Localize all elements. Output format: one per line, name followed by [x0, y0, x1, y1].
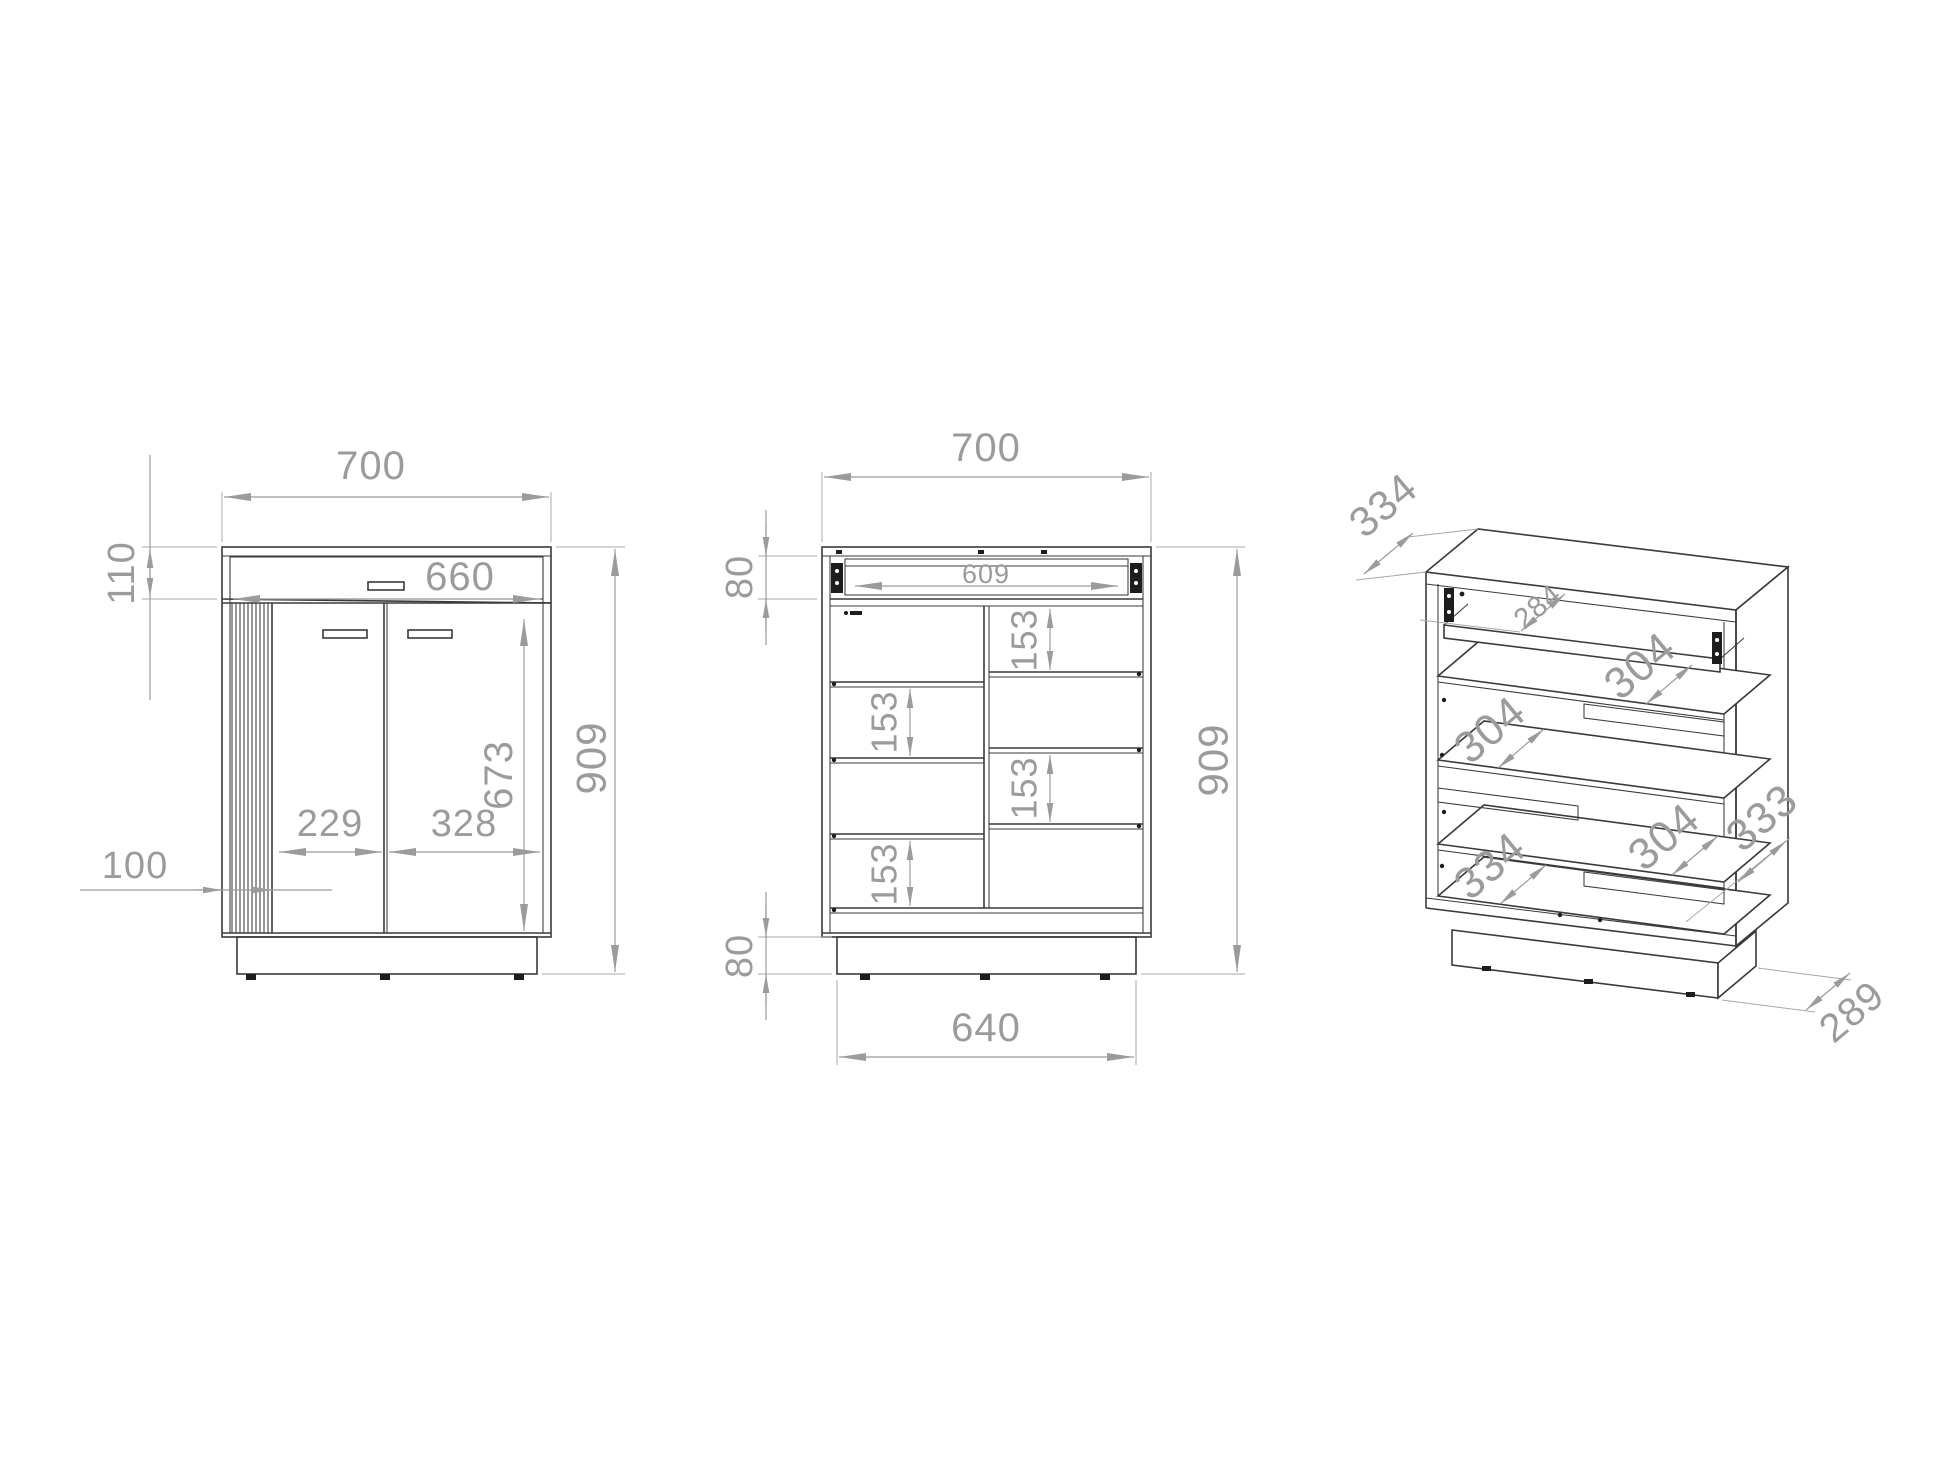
foot	[514, 974, 524, 980]
dim-v1-overall-height: 909	[568, 721, 615, 794]
perspective-view: 334 284 304 304 304 334 333 289	[1340, 464, 1893, 1052]
dim-v1-slat-width: 100	[102, 845, 168, 887]
foot	[860, 974, 870, 980]
front-view-open: 700 609 80 153 153 153 153	[719, 426, 1245, 1065]
plinth	[237, 937, 537, 980]
dim-v1-door-height: 673	[477, 740, 521, 810]
foot	[1482, 966, 1491, 971]
plinth-3d	[1452, 930, 1756, 998]
dimensions-front-open: 700 609 80 153 153 153 153	[719, 426, 1245, 1065]
plinth-open	[837, 937, 1136, 980]
dim-v1-inner-width: 660	[425, 555, 495, 599]
foot	[1584, 979, 1593, 984]
dim-v2-compartment-1: 153	[1004, 608, 1045, 671]
foot	[246, 974, 256, 980]
foot	[1686, 992, 1695, 997]
hinge-hardware-left	[1444, 588, 1454, 622]
dim-v2-overall-width: 700	[951, 426, 1021, 470]
dim-v2-compartment-2: 153	[864, 690, 905, 753]
dim-v1-drawer-height: 110	[101, 541, 143, 605]
dim-v2-overall-height: 909	[1190, 723, 1237, 796]
hinge-plate	[850, 611, 862, 615]
hinge-hardware-right	[1712, 632, 1722, 664]
left-door-handle	[323, 630, 367, 638]
drawer-slide-right	[1130, 563, 1142, 593]
dim-v2-plinth-width: 640	[951, 1006, 1021, 1050]
dim-v2-plinth-height: 80	[719, 934, 761, 978]
dim-v2-drawer-inner-width: 609	[962, 559, 1010, 589]
drawer-handle	[368, 582, 404, 590]
dim-v1-left-door-width: 229	[297, 803, 363, 845]
dim-v3-top-depth: 334	[1340, 464, 1426, 547]
foot	[980, 974, 990, 980]
dim-v3-plinth-depth: 289	[1811, 973, 1893, 1052]
dim-v1-overall-width: 700	[336, 444, 406, 488]
top-drawer	[222, 557, 551, 603]
drawer-slide-left	[831, 563, 843, 593]
front-view-closed: 700 110 660 673 909 229 328	[80, 444, 625, 980]
right-door-handle	[408, 630, 452, 638]
drawing-canvas: 700 110 660 673 909 229 328	[0, 0, 1951, 1463]
dim-v1-right-door-width: 328	[431, 803, 497, 845]
dim-v2-drawer-box-height: 80	[719, 555, 761, 599]
foot	[1100, 974, 1110, 980]
dim-v2-compartment-3: 153	[1004, 756, 1045, 819]
dim-v2-compartment-4: 153	[864, 842, 905, 905]
foot	[380, 974, 390, 980]
slat-panel	[232, 603, 272, 933]
